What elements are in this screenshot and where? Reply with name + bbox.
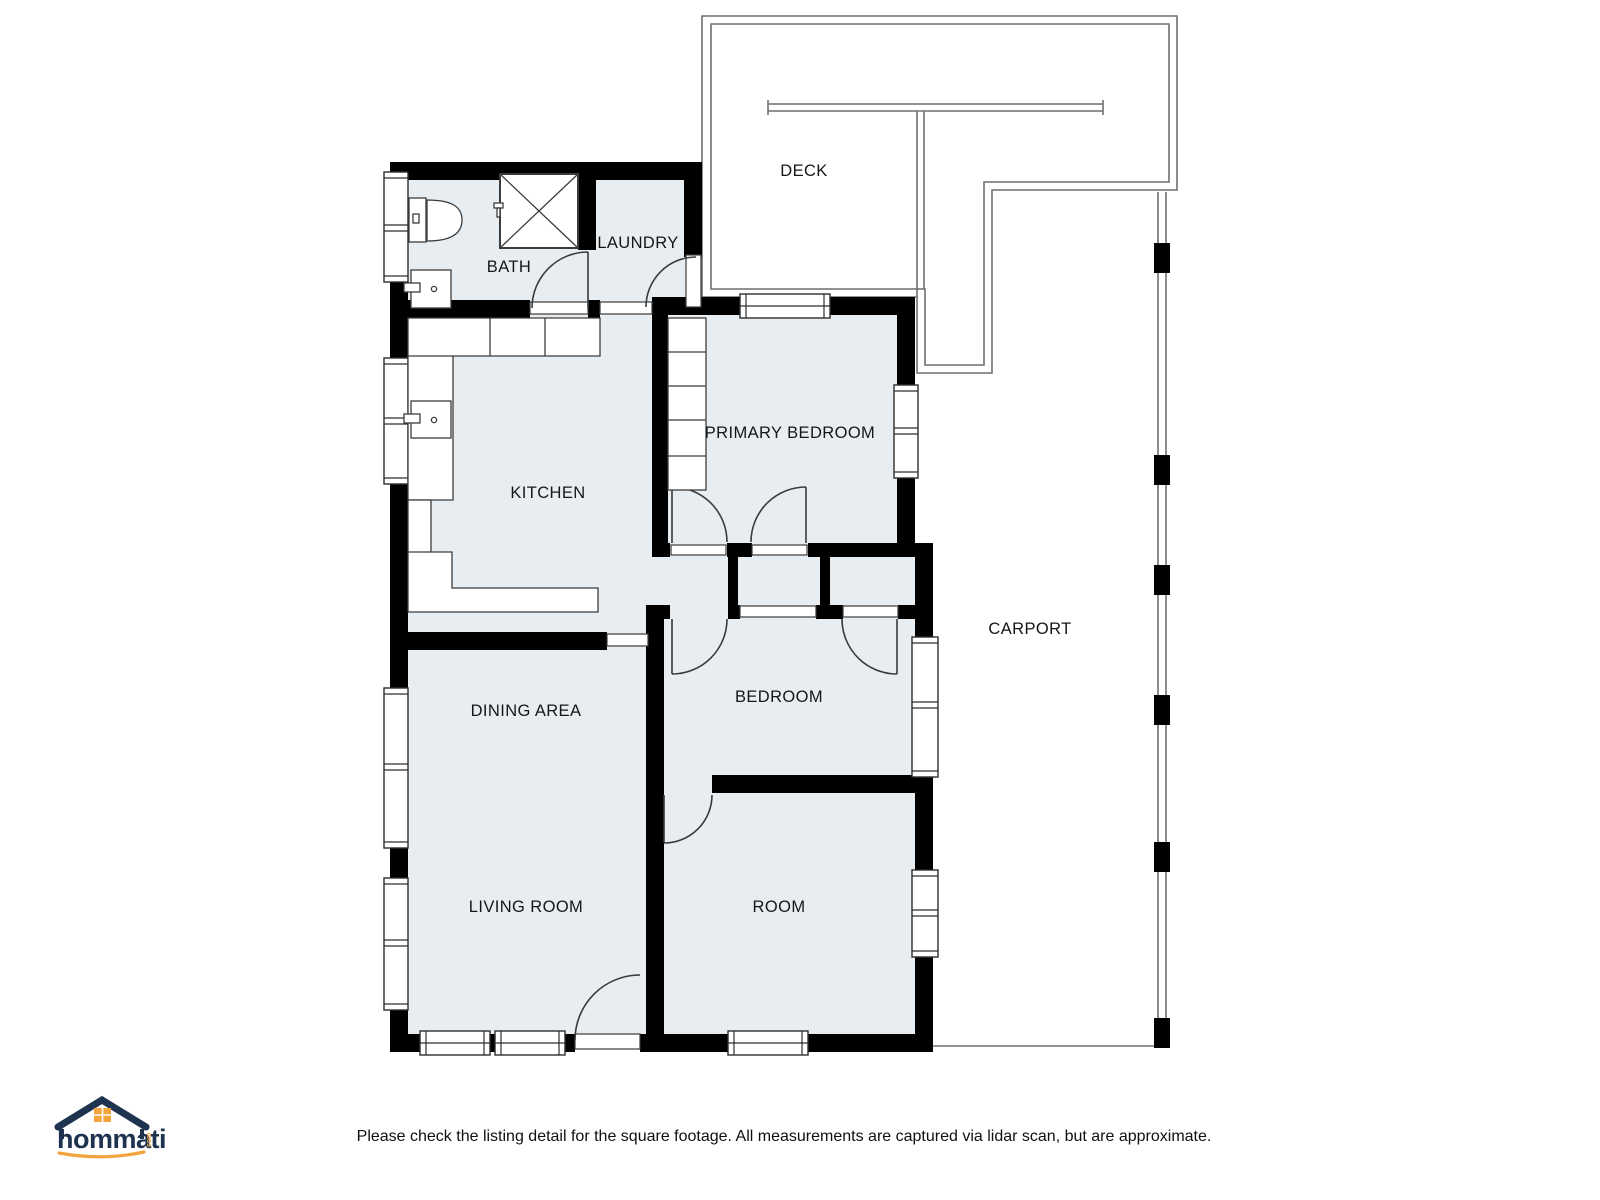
room-floor-living-dining xyxy=(400,615,658,1040)
threshold-closet-b xyxy=(843,606,898,617)
room-label-bedroom: BEDROOM xyxy=(735,688,823,706)
room-label-primary-bedroom: PRIMARY BEDROOM xyxy=(705,424,875,442)
wall-bedroom-room-divider-left xyxy=(646,775,664,793)
wall-laundry-east-upper xyxy=(684,162,702,257)
window-living-south-1 xyxy=(420,1031,490,1055)
closet-sliding-door xyxy=(740,606,816,617)
room-label-dining-area: DINING AREA xyxy=(471,702,582,720)
threshold-laundry-kitchen xyxy=(600,302,652,314)
wall-south-1 xyxy=(390,1034,420,1052)
wall-south-3 xyxy=(565,1034,575,1052)
closet-shelves xyxy=(668,318,706,490)
floorplan-page: DECK BATH LAUNDRY KITCHEN PRIMARY BEDROO… xyxy=(0,0,1600,1200)
wall-primary-south-3 xyxy=(808,543,915,557)
wall-bath-south-stub xyxy=(588,300,600,318)
room-label-kitchen: KITCHEN xyxy=(510,484,585,502)
wall-kitchen-east xyxy=(652,315,668,545)
wall-south-2 xyxy=(490,1034,495,1052)
shower-icon xyxy=(494,174,578,248)
logo-suffix: com xyxy=(146,1133,153,1147)
window-living-south-2 xyxy=(495,1031,565,1055)
window-room-south xyxy=(728,1031,808,1055)
window-living-west xyxy=(384,878,408,1010)
wall-south-5 xyxy=(808,1034,933,1052)
wall-bedroom-north-3 xyxy=(816,605,843,619)
room-label-room: ROOM xyxy=(753,898,806,916)
window-primary-east xyxy=(894,385,918,478)
fence-rails xyxy=(1158,192,1166,1048)
wall-bedroom-room-divider xyxy=(712,775,933,793)
room-label-bath: BATH xyxy=(487,258,531,276)
wall-bedroom-north-1 xyxy=(646,605,670,619)
room-label-living-room: LIVING ROOM xyxy=(469,898,583,916)
wall-east-primary-upper xyxy=(897,297,915,385)
wall-bath-laundry-divider xyxy=(578,162,596,250)
wall-closet-stub-b xyxy=(820,557,830,605)
wall-east-bedroom-upper xyxy=(915,543,933,637)
hommati-logo: hommati com xyxy=(57,1100,166,1157)
room-floor-hallway xyxy=(652,548,926,610)
threshold-primary-right xyxy=(752,545,807,555)
threshold-bath xyxy=(530,302,588,314)
room-label-deck: DECK xyxy=(780,162,827,180)
floorplan-canvas: DECK BATH LAUNDRY KITCHEN PRIMARY BEDROO… xyxy=(0,0,1600,1200)
room-label-carport: CARPORT xyxy=(988,620,1071,638)
wall-primary-south-2 xyxy=(727,543,752,557)
fence-posts xyxy=(1154,243,1170,1048)
window-primary-north xyxy=(740,294,830,318)
window-bath-west xyxy=(384,172,408,282)
window-dining-west xyxy=(384,688,408,848)
wall-bedroom-north-2 xyxy=(728,605,740,619)
kitchen-sink-icon xyxy=(404,401,451,438)
threshold-kitchen-dining xyxy=(607,634,648,646)
bath-sink-icon xyxy=(404,270,451,308)
wall-bedroom-north-4 xyxy=(898,605,915,619)
wall-closet-stub-a xyxy=(728,557,738,605)
room-label-laundry: LAUNDRY xyxy=(597,234,678,252)
wall-kitchen-south xyxy=(390,632,607,650)
window-room-east xyxy=(912,870,938,957)
wall-primary-south-1 xyxy=(652,543,670,557)
window-bedroom-east xyxy=(912,637,938,777)
threshold-primary-left xyxy=(671,545,726,555)
footer-disclaimer: Please check the listing detail for the … xyxy=(357,1128,1212,1145)
wall-center-divider xyxy=(646,612,664,1052)
